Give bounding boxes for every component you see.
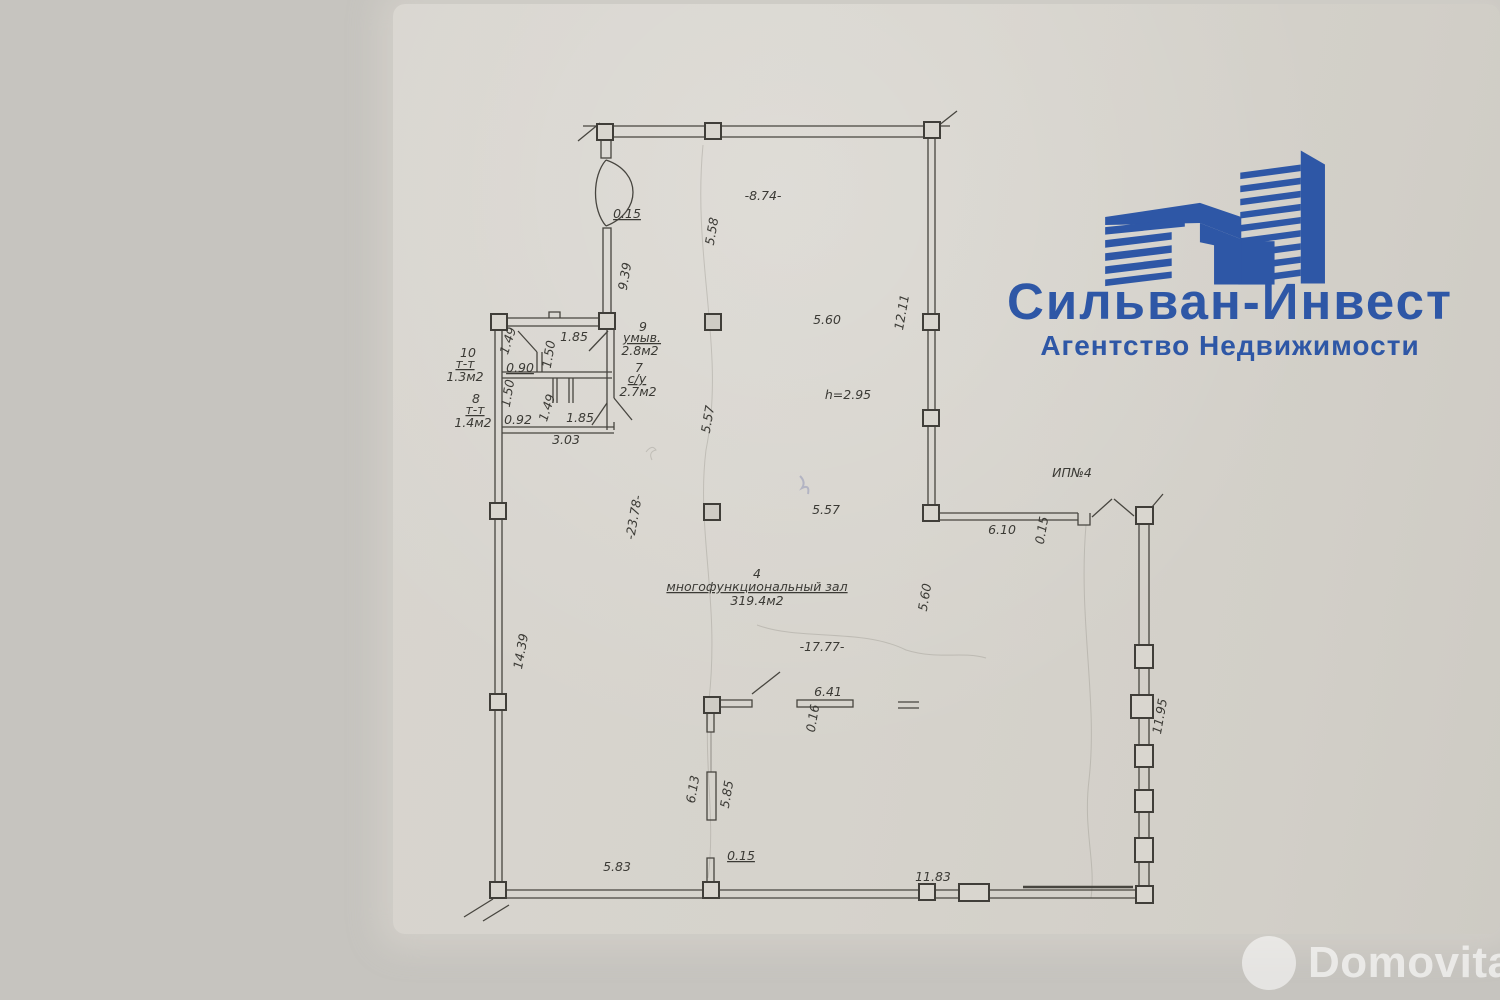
plan-label: 1.50 <box>498 378 518 408</box>
domovita-watermark: Domovita <box>1242 930 1500 996</box>
plan-label: 2.8м2 <box>621 343 658 358</box>
plan-label: 1.4м2 <box>454 415 491 430</box>
plan-label: 12.11 <box>891 293 912 331</box>
plan-label: -17.77- <box>800 639 845 654</box>
plan-label: 5.57 <box>698 404 718 434</box>
plan-label: 1.3м2 <box>446 369 483 384</box>
agency-name: Сильван-Инвест <box>975 272 1485 331</box>
plan-label: 1.85 <box>560 329 588 344</box>
plan-label: ИП№4 <box>1052 465 1092 480</box>
domovita-logo-icon <box>1242 936 1296 990</box>
agency-logo: Сильван-Инвест Агентство Недвижимости <box>975 140 1485 365</box>
plan-label: 6.10 <box>988 522 1016 537</box>
plan-label: 5.57 <box>812 502 840 517</box>
plan-label: 5.83 <box>603 859 631 874</box>
plan-label: 14.39 <box>510 632 531 670</box>
plan-label: 5.85 <box>717 779 737 809</box>
plan-label: -23.78- <box>622 493 645 540</box>
plan-label: 2.7м2 <box>619 384 656 399</box>
plan-label: 1.50 <box>539 339 559 369</box>
plan-label: 5.60 <box>915 582 935 612</box>
plan-label: h=2.95 <box>825 387 871 402</box>
plan-label: 1.49 <box>535 392 558 423</box>
plan-label: 6.41 <box>814 684 842 699</box>
agency-tagline: Агентство Недвижимости <box>975 330 1485 362</box>
plan-label: 0.15 <box>727 848 755 863</box>
plan-label: 0.15 <box>613 206 641 221</box>
plan-label: 0.16 <box>803 703 823 733</box>
plan-label: 0.90 <box>506 360 534 375</box>
plan-label: 11.83 <box>915 869 951 884</box>
plan-label: 0.92 <box>504 412 532 427</box>
plan-label: 5.60 <box>813 312 841 327</box>
plan-label: 3.03 <box>552 432 580 447</box>
plan-label: многофункциональный зал <box>666 579 847 594</box>
domovita-text: Domovita <box>1308 938 1500 988</box>
plan-label: 5.58 <box>702 216 722 246</box>
plan-label: 6.13 <box>683 774 703 804</box>
plan-label: -8.74- <box>745 188 782 203</box>
plan-label: 319.4м2 <box>730 593 783 608</box>
plan-label: 9.39 <box>615 261 635 291</box>
plan-label: 1.85 <box>566 410 594 425</box>
